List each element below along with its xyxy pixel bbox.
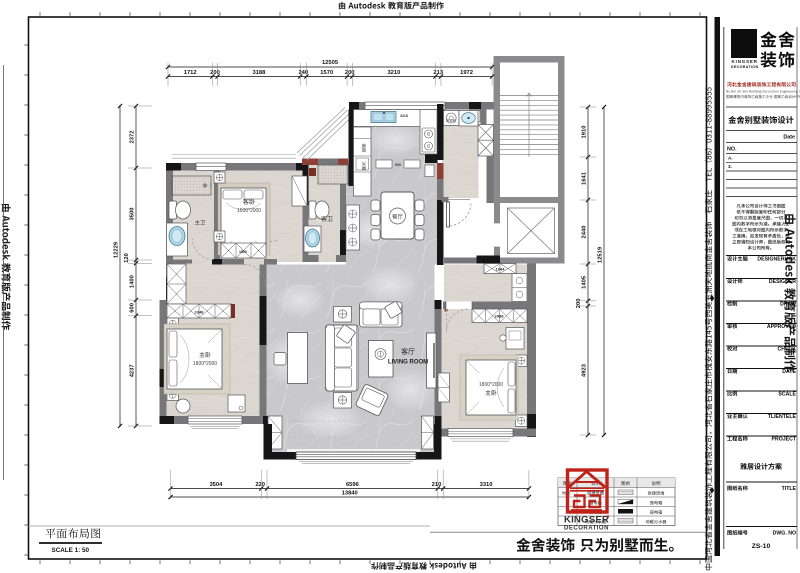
svg-text:A.: A. [728, 156, 733, 161]
svg-text:PROJECT: PROJECT [771, 437, 796, 443]
svg-text:NO.: NO. [727, 147, 737, 153]
svg-text:4923: 4923 [581, 363, 587, 377]
svg-text:SCALE 1: 50: SCALE 1: 50 [52, 547, 90, 554]
svg-text:1400: 1400 [129, 275, 135, 288]
svg-text:3504: 3504 [209, 482, 223, 488]
svg-text:2372: 2372 [129, 131, 135, 144]
svg-text:600: 600 [129, 303, 135, 313]
svg-text:APPROVED: APPROVED [767, 324, 796, 330]
svg-text:200: 200 [345, 70, 355, 76]
svg-text:220: 220 [255, 482, 265, 488]
svg-text:DESIGNER: DESIGNER [769, 279, 796, 285]
svg-text:3210: 3210 [387, 70, 400, 76]
svg-text:6596: 6596 [346, 482, 360, 488]
svg-text:DECORATION: DECORATION [731, 65, 758, 69]
svg-text:CHECK: CHECK [778, 347, 797, 353]
svg-text:600: 600 [395, 163, 401, 167]
svg-text:DECORATION: DECORATION [564, 526, 609, 532]
svg-text:210: 210 [432, 482, 442, 488]
svg-text:1800*2000: 1800*2000 [193, 361, 217, 367]
svg-text:3.: 3. [728, 164, 732, 169]
svg-text:3310: 3310 [480, 482, 493, 488]
svg-text:12519: 12519 [597, 246, 603, 263]
svg-text:LIVING ROOM: LIVING ROOM [388, 360, 428, 366]
svg-text:ZS-10: ZS-10 [752, 543, 771, 550]
svg-text:3500: 3500 [129, 208, 135, 221]
svg-text:1944: 1944 [496, 267, 506, 272]
svg-text:DATE: DATE [782, 369, 796, 375]
svg-text:1800*2000: 1800*2000 [479, 382, 503, 388]
svg-text:1405: 1405 [581, 275, 587, 289]
svg-text:213: 213 [433, 70, 443, 76]
svg-text:2988: 2988 [495, 314, 505, 319]
svg-text:TLIENTELE: TLIENTELE [768, 414, 797, 420]
svg-text:DWG. NO: DWG. NO [773, 531, 796, 537]
svg-text:1641: 1641 [581, 171, 587, 185]
svg-text:SCALE: SCALE [778, 392, 796, 398]
svg-text:2440: 2440 [581, 226, 587, 239]
svg-text:13840: 13840 [342, 491, 358, 497]
svg-text:120: 120 [124, 253, 130, 263]
svg-text:2348: 2348 [195, 310, 205, 315]
svg-text:200: 200 [210, 70, 220, 76]
svg-text:1972: 1972 [460, 70, 473, 76]
svg-text:1570: 1570 [320, 70, 333, 76]
svg-text:3218: 3218 [400, 114, 408, 118]
svg-text:1712: 1712 [184, 70, 197, 76]
svg-text:12229: 12229 [113, 241, 119, 258]
svg-text:TITLE: TITLE [782, 486, 797, 492]
svg-text:DRAW: DRAW [780, 302, 796, 308]
svg-text:240: 240 [298, 70, 308, 76]
svg-text:1500: 1500 [239, 250, 247, 254]
svg-text:4237: 4237 [129, 364, 135, 377]
svg-text:KINGSER: KINGSER [564, 515, 609, 526]
svg-text:200: 200 [576, 299, 582, 309]
svg-text:Date: Date [783, 135, 795, 141]
svg-text:KINGSER: KINGSER [732, 59, 758, 64]
svg-text:1500*2000: 1500*2000 [237, 208, 261, 214]
svg-text:1910: 1910 [581, 126, 587, 139]
svg-text:12505: 12505 [322, 60, 339, 66]
svg-text:DESIGNERHOK: DESIGNERHOK [757, 257, 796, 263]
svg-text:3188: 3188 [252, 70, 266, 76]
